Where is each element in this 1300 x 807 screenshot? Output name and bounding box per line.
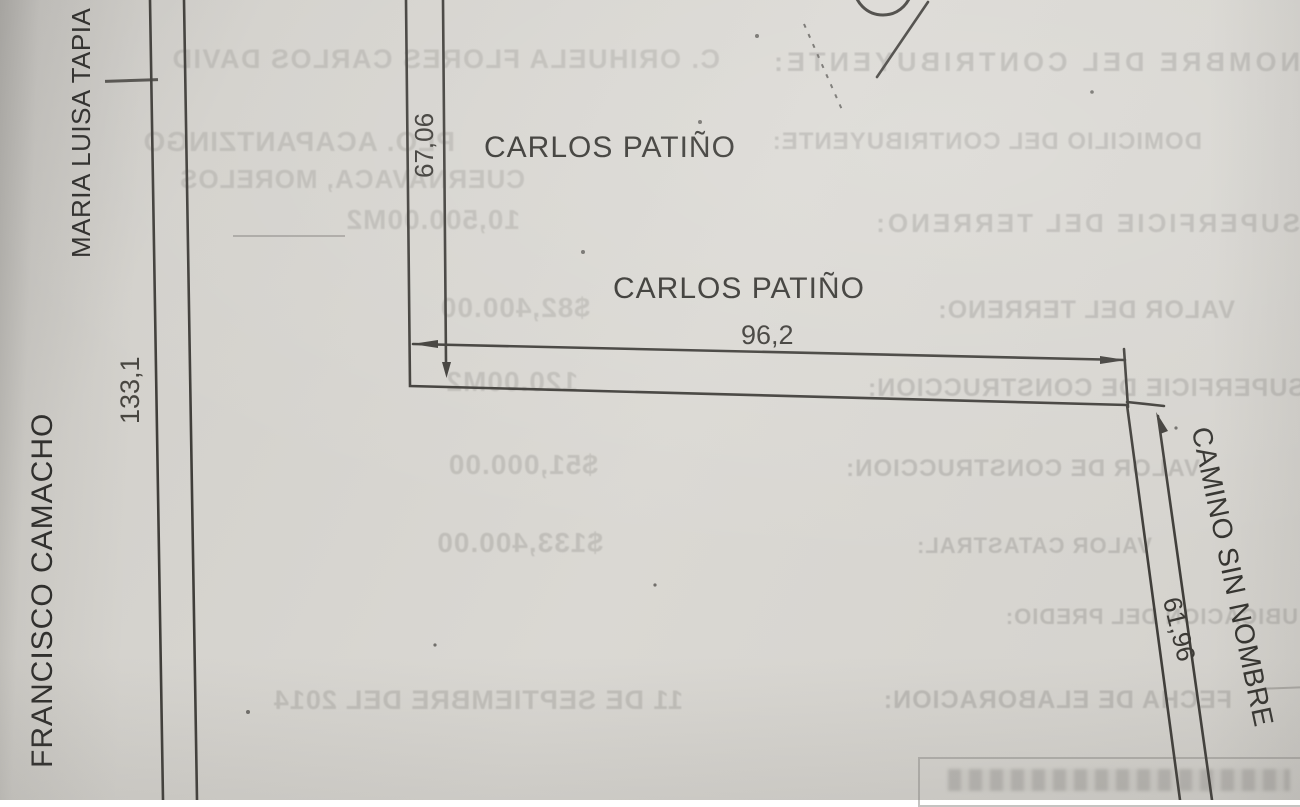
neighbor-label-carlos-patino-inner: CARLOS PATIÑO: [613, 272, 865, 306]
north-arrow-stem: [877, 2, 928, 77]
sketch-dashed-mark: [804, 24, 843, 112]
ink-speck: [581, 250, 585, 254]
east-dimension-start-tick: [1127, 402, 1164, 406]
ink-speck: [653, 583, 656, 586]
plot-drawing: [0, 0, 1300, 800]
dimension-label-northwest-67-06: 67,06: [409, 113, 440, 178]
ink-speck: [246, 710, 250, 714]
west-boundary-line-outer: [150, 0, 163, 800]
arrowhead-down-icon: [442, 362, 451, 378]
neighbor-label-maria-luisa-tapia: MARIA LUISA TAPIA: [66, 8, 97, 258]
dimension-label-west-133-1: 133,1: [115, 356, 146, 424]
neighbor-label-carlos-patino-top: CARLOS PATIÑO: [484, 131, 736, 165]
ink-speck: [1090, 90, 1094, 94]
neighbor-label-francisco-camacho: FRANCISCO CAMACHO: [26, 413, 60, 768]
north-arrow-circle: [854, 0, 912, 15]
arrowhead-left-icon: [412, 340, 438, 348]
ink-speck: [1174, 426, 1177, 429]
ink-speck: [755, 34, 759, 38]
arrowhead-right-icon: [1100, 356, 1126, 364]
north-dimension-end-tick: [1124, 349, 1128, 407]
west-boundary-line-inner: [184, 0, 197, 800]
dimension-label-north-96-2: 96,2: [741, 320, 794, 351]
northwest-dimension-line: [443, 0, 446, 362]
ink-speck: [433, 643, 436, 646]
ink-speck: [698, 120, 702, 124]
scanned-page: C. ORIHUELA FLORES CARLOS DAVID NOMBRE D…: [0, 0, 1300, 800]
